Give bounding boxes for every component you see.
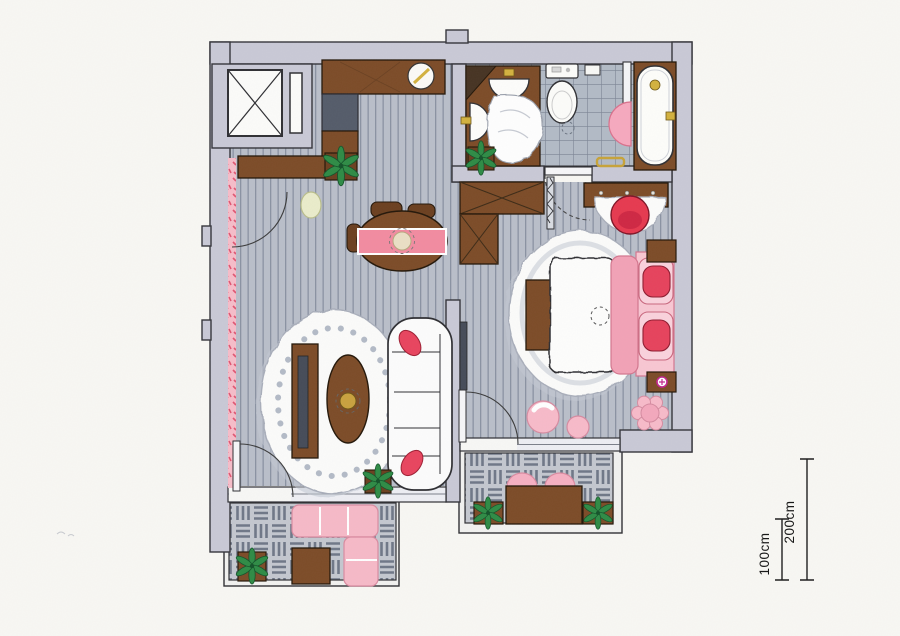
drain-gold-icon: [650, 80, 660, 90]
toilet-tank: [546, 64, 578, 78]
scale-label-100cm: 100cm: [757, 532, 772, 575]
faucet-gold-icon: [666, 112, 675, 120]
pouf: [527, 401, 559, 433]
planter: [583, 497, 614, 529]
double-bed: [550, 252, 674, 376]
gold-bowl-icon: [340, 393, 356, 409]
elevator: [212, 64, 312, 148]
duvet: [550, 258, 614, 372]
nightstand: [647, 240, 676, 262]
wall-pilaster: [202, 226, 211, 246]
flush-button: [552, 67, 561, 72]
accent-cushion: [643, 320, 670, 351]
faucet-gold-icon: [504, 69, 514, 76]
faucet-gold-icon: [461, 117, 471, 124]
balcony-door-leaf: [233, 441, 240, 491]
stool: [301, 192, 321, 218]
wall-top: [210, 42, 692, 64]
chair-seat: [618, 211, 642, 229]
flush-dot: [566, 68, 570, 72]
pink-curtain: [228, 158, 236, 488]
hall-opening-floor: [446, 182, 460, 300]
outdoor-table: [506, 486, 582, 524]
shaft-door: [290, 73, 302, 133]
bathtub: [634, 62, 676, 170]
knob: [599, 191, 603, 195]
potted-plant: [235, 548, 269, 584]
toilet-bowl: [547, 81, 577, 123]
wall-corner-block: [620, 430, 692, 452]
wall-top-notch: [446, 30, 468, 43]
floor-plan-page: 100cm 200cm: [0, 0, 900, 636]
console-shelf: [238, 156, 326, 178]
bedroom-balcony-door-gap: [461, 439, 517, 450]
tv-console: [292, 344, 318, 458]
balcony-dining: [459, 449, 622, 533]
outdoor-table: [292, 548, 330, 584]
wall-tv: [460, 322, 467, 390]
bed-bench: [526, 280, 553, 350]
nightstand: [647, 372, 676, 392]
bed-runner: [611, 256, 638, 374]
minibar-fridge: [322, 94, 358, 131]
toilet-paper-holder: [585, 65, 600, 75]
toilet: [546, 64, 578, 123]
floor-plan-drawing: 100cm 200cm: [0, 0, 900, 636]
wall-pilaster: [202, 320, 211, 340]
sliding-door-leaf: [545, 167, 592, 175]
knob: [625, 191, 629, 195]
television: [298, 356, 308, 448]
pouf: [567, 416, 589, 438]
wall-bath-south-left: [452, 166, 544, 182]
sofa: [388, 318, 452, 490]
serving-plate: [393, 232, 411, 250]
accent-cushion: [643, 266, 670, 297]
balcony-door-leaf: [459, 390, 466, 442]
scale-label-200cm: 200cm: [782, 500, 797, 543]
coffee-table: [327, 355, 369, 443]
planter: [473, 497, 504, 529]
balcony-lounge: [224, 499, 399, 586]
knob: [651, 191, 655, 195]
